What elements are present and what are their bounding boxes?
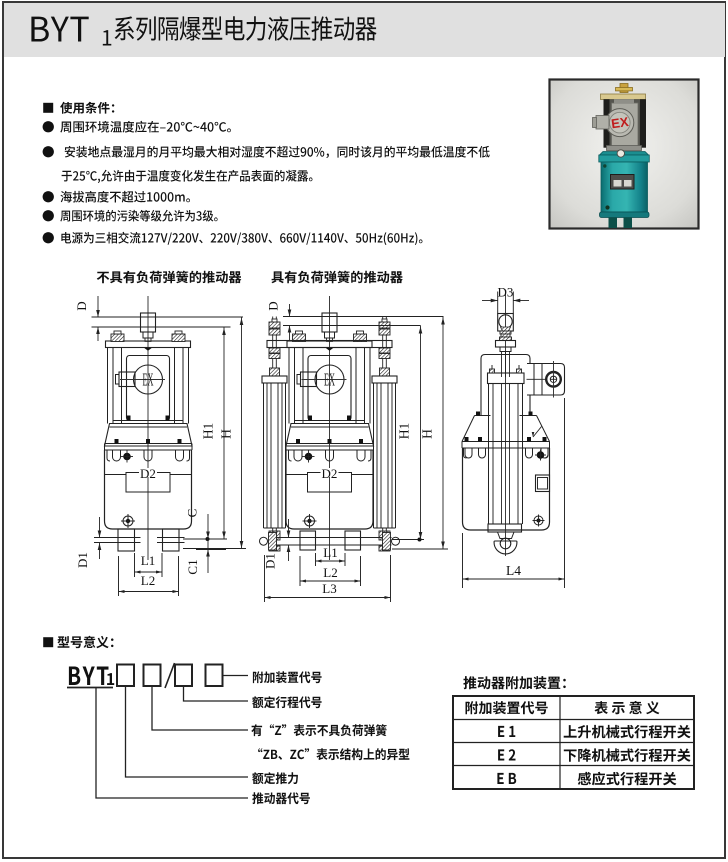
svg-text:EX: EX: [324, 370, 335, 390]
svg-text:D2: D2: [140, 466, 156, 481]
svg-text:H1: H1: [397, 423, 412, 440]
svg-text:EX: EX: [143, 370, 154, 390]
svg-text:L2: L2: [141, 573, 155, 588]
svg-text:L4: L4: [506, 563, 521, 578]
svg-text:H1: H1: [201, 423, 216, 440]
svg-text:EX: EX: [610, 114, 630, 131]
svg-text:H: H: [219, 429, 234, 439]
svg-text:C1: C1: [185, 559, 200, 574]
svg-text:H: H: [420, 429, 435, 439]
svg-text:D1: D1: [75, 552, 90, 568]
svg-text:L1: L1: [323, 545, 337, 560]
svg-text:L2: L2: [323, 565, 337, 580]
svg-text:L1: L1: [141, 553, 155, 568]
svg-text:C: C: [185, 509, 200, 518]
svg-text:L3: L3: [322, 581, 336, 596]
svg-text:D: D: [266, 301, 281, 310]
svg-text:D3: D3: [498, 285, 514, 300]
svg-text:D: D: [74, 301, 89, 310]
svg-text:D2: D2: [322, 466, 338, 481]
